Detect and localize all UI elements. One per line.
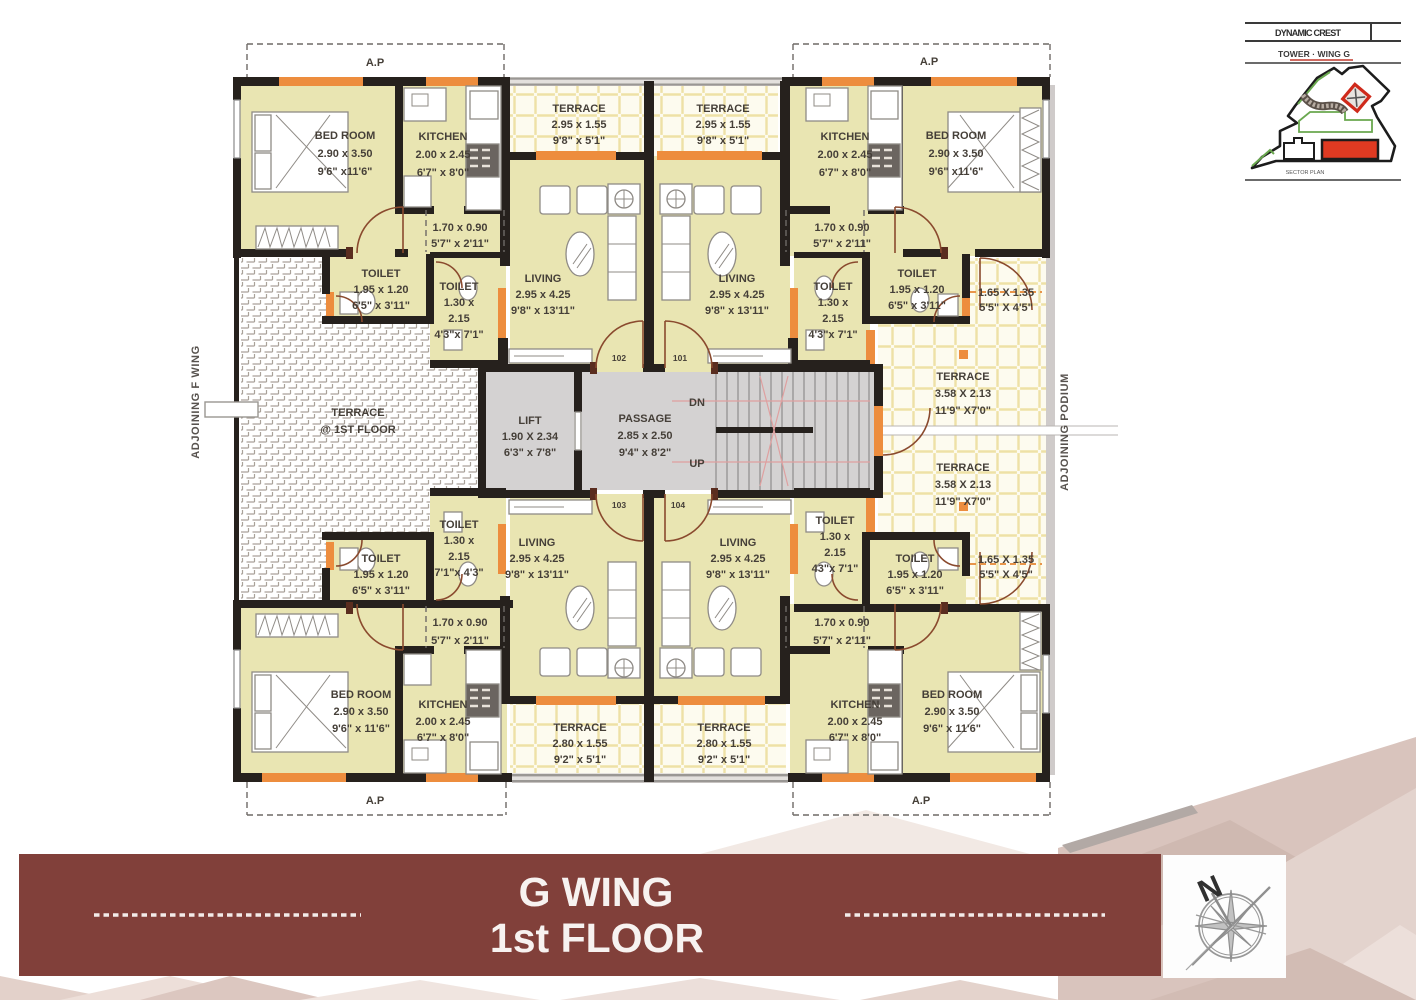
svg-text:9'4" x 8'2": 9'4" x 8'2" xyxy=(619,447,671,459)
svg-text:LIVING: LIVING xyxy=(519,537,556,549)
svg-text:TERRACE: TERRACE xyxy=(936,462,989,474)
svg-text:43"x 7'1": 43"x 7'1" xyxy=(812,563,859,575)
svg-text:2.90 x 3.50: 2.90 x 3.50 xyxy=(928,148,983,160)
svg-text:1.70 x 0.90: 1.70 x 0.90 xyxy=(432,222,487,234)
svg-text:1.95 x 1.20: 1.95 x 1.20 xyxy=(887,569,942,581)
svg-text:PASSAGE: PASSAGE xyxy=(619,413,672,425)
svg-text:5'7" x 2'11": 5'7" x 2'11" xyxy=(813,635,871,647)
svg-text:2.95 x 4.25: 2.95 x 4.25 xyxy=(509,553,564,565)
svg-text:5'7" x 2'11": 5'7" x 2'11" xyxy=(431,635,489,647)
svg-text:1.70 x 0.90: 1.70 x 0.90 xyxy=(814,617,869,629)
svg-text:TOILET: TOILET xyxy=(814,281,853,293)
svg-text:9'8" x 13'11": 9'8" x 13'11" xyxy=(505,569,569,581)
svg-text:LIVING: LIVING xyxy=(525,273,562,285)
svg-text:103: 103 xyxy=(612,500,626,510)
svg-text:2.80 x 1.55: 2.80 x 1.55 xyxy=(552,738,607,750)
svg-text:KITCHEN: KITCHEN xyxy=(821,131,870,143)
svg-text:TOILET: TOILET xyxy=(898,268,937,280)
svg-text:KITCHEN: KITCHEN xyxy=(419,699,468,711)
svg-text:A.P: A.P xyxy=(366,795,384,807)
svg-text:9'8" x 5'1": 9'8" x 5'1" xyxy=(697,135,749,147)
svg-text:2.90 x 3.50: 2.90 x 3.50 xyxy=(333,706,388,718)
svg-text:2.95 x 1.55: 2.95 x 1.55 xyxy=(551,119,606,131)
svg-text:9'6" x 11'6": 9'6" x 11'6" xyxy=(923,723,981,735)
svg-text:TOWER · WING G: TOWER · WING G xyxy=(1278,49,1350,59)
svg-text:1.90 X 2.34: 1.90 X 2.34 xyxy=(502,431,559,443)
svg-text:2.90 x 3.50: 2.90 x 3.50 xyxy=(924,706,979,718)
svg-text:9'8" x 13'11": 9'8" x 13'11" xyxy=(511,305,575,317)
svg-text:6'5" x 3'11": 6'5" x 3'11" xyxy=(886,585,944,597)
svg-text:DYNAMIC CREST: DYNAMIC CREST xyxy=(1275,28,1342,38)
svg-text:LIFT: LIFT xyxy=(518,415,541,427)
svg-text:ADJOINING PODIUM: ADJOINING PODIUM xyxy=(1059,373,1071,491)
svg-text:TOILET: TOILET xyxy=(816,515,855,527)
svg-text:TERRACE: TERRACE xyxy=(331,407,384,419)
svg-text:1.95 x 1.20: 1.95 x 1.20 xyxy=(353,569,408,581)
svg-text:6'7" x 8'0": 6'7" x 8'0" xyxy=(417,732,469,744)
svg-text:A.P: A.P xyxy=(920,56,938,68)
svg-text:1.30 x: 1.30 x xyxy=(444,535,475,547)
svg-text:KITCHEN: KITCHEN xyxy=(419,131,468,143)
svg-text:9'2" x 5'1": 9'2" x 5'1" xyxy=(698,754,750,766)
svg-text:7'1"x 4'3": 7'1"x 4'3" xyxy=(434,567,483,579)
svg-text:6'7" x 8'0": 6'7" x 8'0" xyxy=(417,167,469,179)
svg-text:@ 1ST FLOOR: @ 1ST FLOOR xyxy=(320,424,396,436)
svg-text:9'8" x 5'1": 9'8" x 5'1" xyxy=(553,135,605,147)
svg-text:DN: DN xyxy=(689,397,705,409)
svg-text:2.15: 2.15 xyxy=(822,313,843,325)
svg-text:9'6" x11'6": 9'6" x11'6" xyxy=(318,166,373,178)
svg-text:KITCHEN: KITCHEN xyxy=(831,699,880,711)
svg-text:5'5" X 4'5": 5'5" X 4'5" xyxy=(979,302,1033,314)
svg-text:TERRACE: TERRACE xyxy=(553,722,606,734)
svg-text:2.95 x 4.25: 2.95 x 4.25 xyxy=(709,289,764,301)
svg-text:2.15: 2.15 xyxy=(448,313,469,325)
svg-text:1.30 x: 1.30 x xyxy=(818,297,849,309)
svg-text:5'7" x 2'11": 5'7" x 2'11" xyxy=(431,238,489,250)
svg-text:TERRACE: TERRACE xyxy=(696,103,749,115)
svg-text:TERRACE: TERRACE xyxy=(697,722,750,734)
svg-text:101: 101 xyxy=(673,353,687,363)
svg-text:1.65 X 1.35: 1.65 X 1.35 xyxy=(978,287,1034,299)
svg-text:6'5" x 3'11": 6'5" x 3'11" xyxy=(352,585,410,597)
svg-text:A.P: A.P xyxy=(366,57,384,69)
svg-text:6'3" x 7'8": 6'3" x 7'8" xyxy=(504,447,556,459)
svg-text:1.30 x: 1.30 x xyxy=(444,297,475,309)
svg-text:1.65 X 1.35: 1.65 X 1.35 xyxy=(978,554,1034,566)
svg-text:1.70 x 0.90: 1.70 x 0.90 xyxy=(432,617,487,629)
svg-text:5'7" x 2'11": 5'7" x 2'11" xyxy=(813,238,871,250)
svg-text:6'5" x 3'11": 6'5" x 3'11" xyxy=(888,300,946,312)
svg-text:6'5" x 3'11": 6'5" x 3'11" xyxy=(352,300,410,312)
svg-text:2.00 x 2.45: 2.00 x 2.45 xyxy=(415,716,470,728)
svg-text:11'9" X7'0": 11'9" X7'0" xyxy=(935,405,991,417)
svg-text:104: 104 xyxy=(671,500,685,510)
svg-text:9'2" x 5'1": 9'2" x 5'1" xyxy=(554,754,606,766)
svg-text:BED ROOM: BED ROOM xyxy=(922,689,983,701)
svg-text:3.58 X 2.13: 3.58 X 2.13 xyxy=(935,388,991,400)
svg-text:1.70 x 0.90: 1.70 x 0.90 xyxy=(814,222,869,234)
svg-text:4'3"x 7'1": 4'3"x 7'1" xyxy=(808,329,857,341)
svg-text:TERRACE: TERRACE xyxy=(552,103,605,115)
svg-text:1.30 x: 1.30 x xyxy=(820,531,851,543)
svg-text:2.95 x 4.25: 2.95 x 4.25 xyxy=(710,553,765,565)
svg-text:2.00 x 2.45: 2.00 x 2.45 xyxy=(817,149,872,161)
svg-text:TOILET: TOILET xyxy=(440,281,479,293)
svg-text:TOILET: TOILET xyxy=(896,553,935,565)
svg-text:9'8" x 13'11": 9'8" x 13'11" xyxy=(705,305,769,317)
svg-text:6'7" x 8'0": 6'7" x 8'0" xyxy=(819,167,871,179)
svg-text:2.00 x 2.45: 2.00 x 2.45 xyxy=(415,149,470,161)
svg-text:1.95 x 1.20: 1.95 x 1.20 xyxy=(889,284,944,296)
svg-text:11'9" X7'0": 11'9" X7'0" xyxy=(935,496,991,508)
svg-text:A.P: A.P xyxy=(912,795,930,807)
svg-text:2.90 x 3.50: 2.90 x 3.50 xyxy=(317,148,372,160)
svg-text:3.58 X 2.13: 3.58 X 2.13 xyxy=(935,479,991,491)
svg-text:SECTOR PLAN: SECTOR PLAN xyxy=(1286,170,1325,176)
svg-text:2.15: 2.15 xyxy=(824,547,845,559)
svg-text:BED ROOM: BED ROOM xyxy=(331,689,392,701)
svg-text:2.95 x 1.55: 2.95 x 1.55 xyxy=(695,119,750,131)
svg-text:TOILET: TOILET xyxy=(362,268,401,280)
svg-text:6'7" x 8'0": 6'7" x 8'0" xyxy=(829,732,881,744)
svg-text:TERRACE: TERRACE xyxy=(936,371,989,383)
svg-text:BED ROOM: BED ROOM xyxy=(926,130,987,142)
svg-text:LIVING: LIVING xyxy=(719,273,756,285)
svg-text:2.00 x 2.45: 2.00 x 2.45 xyxy=(827,716,882,728)
svg-text:9'6" x 11'6": 9'6" x 11'6" xyxy=(332,723,390,735)
svg-text:2.80 x 1.55: 2.80 x 1.55 xyxy=(696,738,751,750)
svg-text:2.15: 2.15 xyxy=(448,551,469,563)
svg-text:5'5" X 4'5": 5'5" X 4'5" xyxy=(979,569,1033,581)
svg-text:4'3"x 7'1": 4'3"x 7'1" xyxy=(434,329,483,341)
svg-text:TOILET: TOILET xyxy=(440,519,479,531)
svg-text:UP: UP xyxy=(689,458,704,470)
svg-text:2.95 x 4.25: 2.95 x 4.25 xyxy=(515,289,570,301)
svg-text:1.95 x 1.20: 1.95 x 1.20 xyxy=(353,284,408,296)
svg-text:ADJOINING F WING: ADJOINING F WING xyxy=(190,345,202,459)
svg-text:2.85 x 2.50: 2.85 x 2.50 xyxy=(617,430,672,442)
svg-text:1st FLOOR: 1st FLOOR xyxy=(490,915,704,961)
svg-text:TOILET: TOILET xyxy=(362,553,401,565)
svg-text:BED ROOM: BED ROOM xyxy=(315,130,376,142)
svg-text:G WING: G WING xyxy=(519,869,674,915)
svg-text:9'8" x 13'11": 9'8" x 13'11" xyxy=(706,569,770,581)
svg-text:102: 102 xyxy=(612,353,626,363)
svg-text:LIVING: LIVING xyxy=(720,537,757,549)
svg-text:9'6" x11'6": 9'6" x11'6" xyxy=(929,166,984,178)
